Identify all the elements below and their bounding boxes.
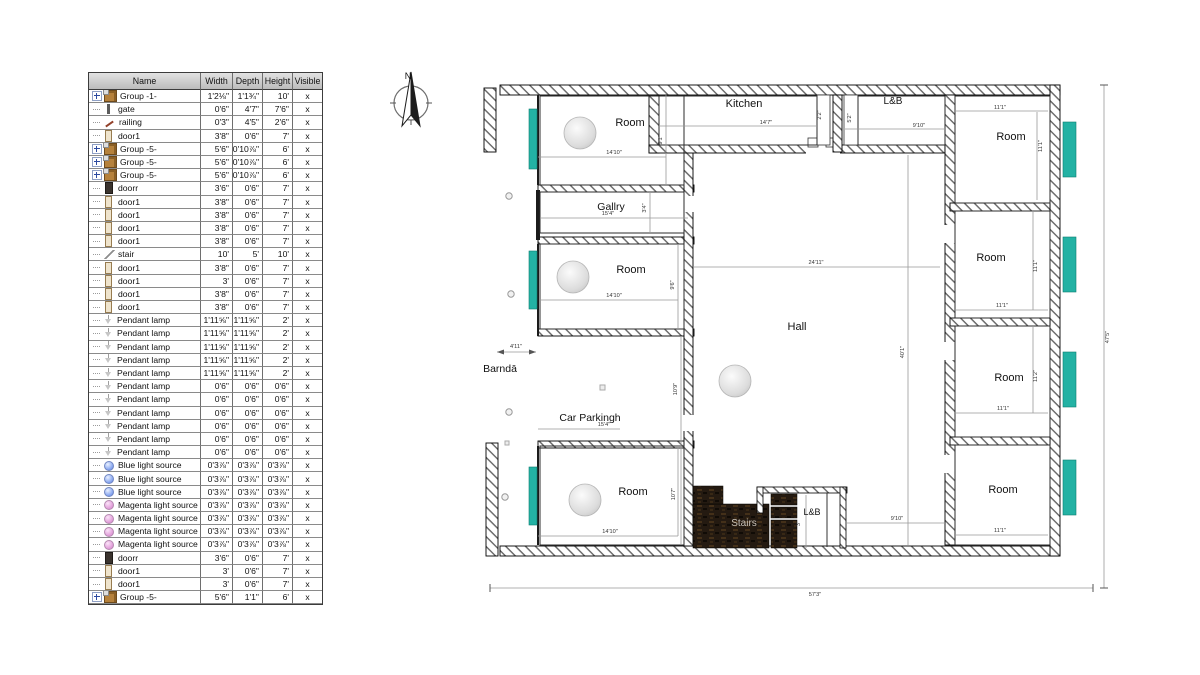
room-label: Room bbox=[988, 484, 1017, 496]
wall-segment bbox=[833, 95, 842, 152]
dimension-label: 4'11" bbox=[510, 344, 522, 350]
window[interactable] bbox=[1063, 122, 1076, 177]
small-light[interactable] bbox=[505, 441, 509, 445]
dimension-label: 2'2" bbox=[817, 110, 823, 119]
wall-segment bbox=[757, 487, 847, 493]
dimension-label: 11'1" bbox=[1038, 140, 1044, 152]
pendant-lamp[interactable] bbox=[569, 484, 601, 516]
dimension-label: 10'9" bbox=[673, 383, 679, 395]
dimension-label: 5'2" bbox=[847, 113, 853, 122]
wall-segment bbox=[500, 85, 1060, 95]
dimension-label: 9'10" bbox=[891, 516, 903, 522]
wall-segment bbox=[950, 318, 1050, 326]
dimension-label: 3'4" bbox=[642, 203, 648, 212]
pendant-lamp[interactable] bbox=[564, 117, 596, 149]
window[interactable] bbox=[1063, 460, 1076, 515]
dimension-label: 47'5" bbox=[1105, 331, 1111, 343]
dimension-label: 15'4" bbox=[602, 211, 614, 217]
room-label: Room bbox=[615, 117, 644, 129]
wall-segment bbox=[757, 487, 763, 513]
window[interactable] bbox=[1063, 352, 1076, 407]
wall-segment bbox=[538, 237, 694, 244]
wall-segment bbox=[1050, 85, 1060, 556]
room-label: Hall bbox=[788, 321, 807, 333]
dimension-label: 14'10" bbox=[606, 293, 622, 299]
small-light[interactable] bbox=[508, 291, 514, 297]
dimension-label: 9'1" bbox=[658, 135, 664, 144]
pendant-lamp[interactable] bbox=[557, 261, 589, 293]
wall-segment bbox=[538, 185, 694, 192]
wall-segment bbox=[840, 487, 846, 548]
room-label: Room bbox=[996, 131, 1025, 143]
dimension-label: 11'1" bbox=[994, 528, 1006, 534]
north-compass: N bbox=[390, 71, 432, 126]
small-light[interactable] bbox=[502, 494, 508, 500]
room-label: Car Parkingh bbox=[559, 412, 620, 424]
room-label: Barndā bbox=[483, 363, 517, 375]
wall-segment bbox=[486, 443, 498, 556]
dimension-label: 15'4" bbox=[598, 422, 610, 428]
room-label: Room bbox=[616, 264, 645, 276]
window[interactable] bbox=[529, 109, 537, 169]
dimension-label: 11'2" bbox=[1033, 370, 1039, 382]
window[interactable] bbox=[529, 467, 537, 525]
compass-needle bbox=[411, 72, 420, 126]
dimension-label: 24'11" bbox=[808, 260, 823, 266]
staircase[interactable] bbox=[693, 486, 797, 548]
window[interactable] bbox=[529, 251, 537, 309]
floor-plan-canvas[interactable]: N bbox=[0, 0, 1200, 675]
room-label: Room bbox=[618, 486, 647, 498]
dimension-label: 40'1" bbox=[900, 346, 906, 358]
room-label: Stairs bbox=[731, 518, 757, 529]
pendant-lamp[interactable] bbox=[719, 365, 751, 397]
room-label: Kitchen bbox=[726, 98, 763, 110]
dimension-label: 10'7" bbox=[671, 488, 677, 500]
dimension-label: 9'10" bbox=[913, 123, 925, 129]
wall-segment bbox=[950, 203, 1050, 211]
room-label: L&B bbox=[803, 507, 820, 517]
dimension-label: 9'6" bbox=[670, 280, 676, 289]
dimension-label: 14'10" bbox=[602, 529, 618, 535]
small-light[interactable] bbox=[600, 385, 605, 390]
small-light[interactable] bbox=[506, 409, 512, 415]
dimension-label: 11'1" bbox=[994, 105, 1006, 111]
dimension-label: 3' bbox=[796, 522, 802, 526]
room-label: L&B bbox=[884, 96, 903, 107]
wall-segment bbox=[484, 88, 496, 152]
compass-north-label: N bbox=[405, 71, 412, 81]
wall-segment bbox=[538, 329, 694, 336]
dimension-label: 11'1" bbox=[996, 303, 1008, 309]
wall-segment bbox=[649, 145, 945, 153]
wall-segment bbox=[950, 437, 1050, 445]
dimension-label: 14'7" bbox=[760, 120, 772, 126]
room-label: Room bbox=[994, 372, 1023, 384]
wall-segment bbox=[538, 441, 694, 448]
small-light[interactable] bbox=[506, 193, 512, 199]
cad-application-window: NameWidthDepthHeightVisible Group -1-1'2… bbox=[0, 0, 1200, 675]
dimension-label: 11'1" bbox=[997, 406, 1009, 412]
dimension-label: 11'1" bbox=[1033, 260, 1039, 272]
window[interactable] bbox=[1063, 237, 1076, 292]
dimension-label: 57'3" bbox=[809, 592, 821, 598]
dimension-label: 14'10" bbox=[606, 150, 622, 156]
room-label: Room bbox=[976, 252, 1005, 264]
